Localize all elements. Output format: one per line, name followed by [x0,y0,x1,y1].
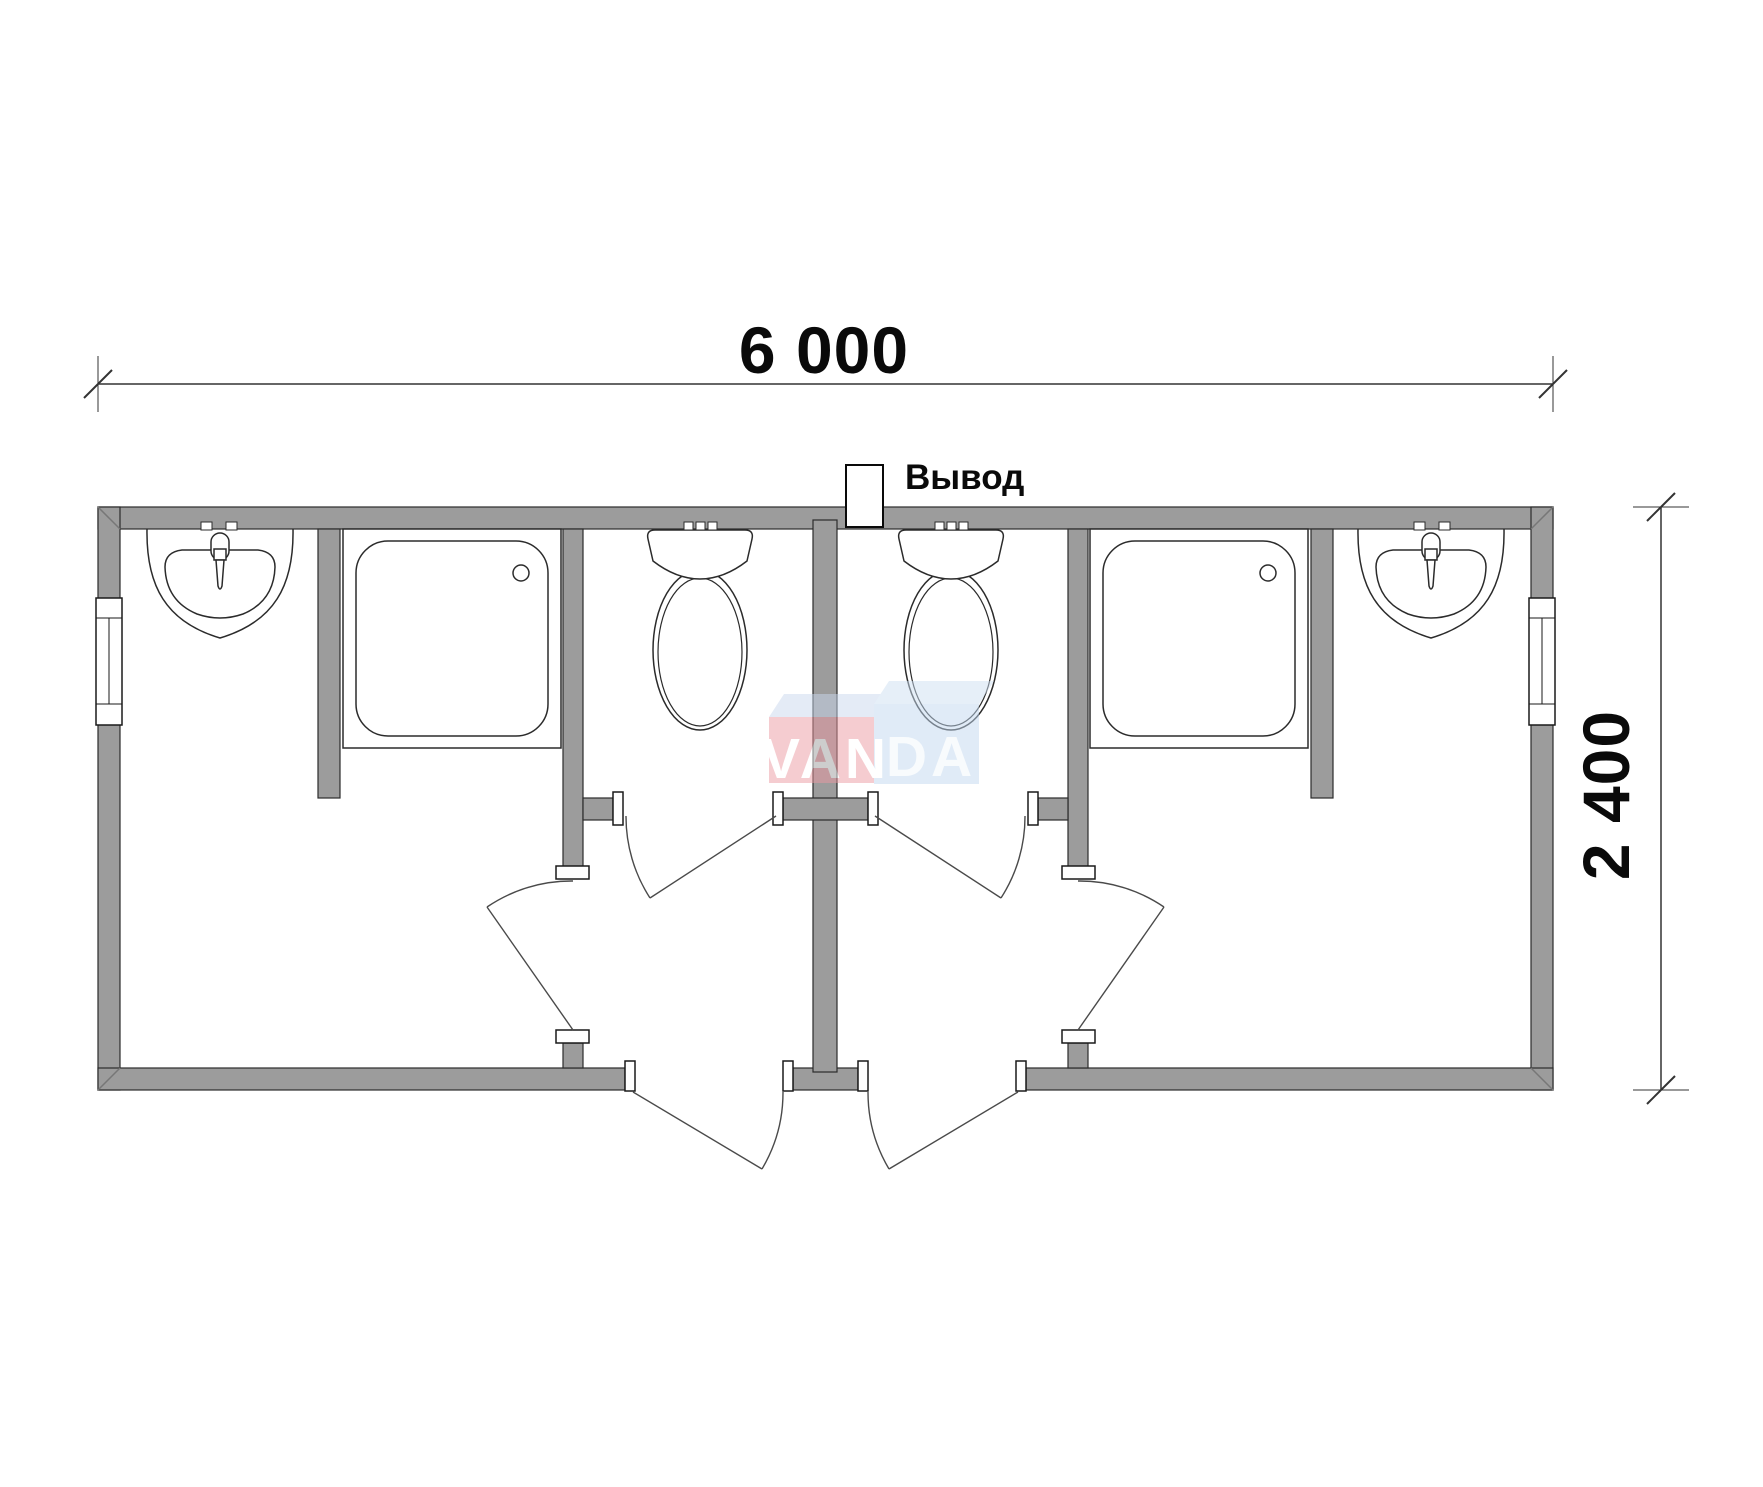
jamb-entrance-left-a [625,1061,635,1091]
toilet-left-icon [648,522,753,730]
door-swing-arc [1078,881,1164,907]
window-left [96,598,122,725]
door-swing-arc [1001,816,1025,898]
watermark-box-top-left [769,694,891,717]
window-right [1529,598,1555,725]
jamb-stall-right-a [868,792,878,825]
door-stub-center [783,798,868,820]
walls [98,507,1553,1090]
door-swing-arc [868,1092,889,1169]
door-room-left [487,881,573,1030]
washbasin-left-icon [147,522,293,638]
partition-left-stall [563,529,583,867]
door-leaf [1078,907,1164,1030]
door-leaf [889,1092,1018,1169]
door-entrance-right [868,1092,1018,1169]
jamb-room-left-bottom [556,1030,589,1043]
dimension-height-label: 2 400 [1569,710,1643,880]
door-leaf [487,907,573,1030]
jamb-stall-left-a [613,792,623,825]
wall-left [98,507,120,1090]
door-room-right [1078,881,1164,1030]
dimension-width-label: 6 000 [739,313,909,387]
door-stub-bottom-right [1068,1043,1088,1068]
jamb-entrance-right-a [858,1061,868,1091]
jamb-entrance-left-b [783,1061,793,1091]
outlet-label: Вывод [905,458,1024,497]
outlet-box-icon [846,465,883,527]
floor-plan-drawing: 6 000 2 400 [0,0,1763,1487]
watermark-text-van: VAN [762,727,890,791]
door-entrance-left [633,1092,783,1169]
door-swing-arc [762,1092,783,1169]
watermark-box-top-right [874,681,994,704]
door-stub-right-stall [1038,798,1068,820]
shower-tray-left-icon [343,529,561,748]
jamb-room-right-top [1062,866,1095,879]
shower-tray-right-icon [1090,529,1308,748]
door-stub-bottom-left [563,1043,583,1068]
wall-right [1531,507,1553,1090]
door-leaf [633,1092,762,1169]
jamb-stall-right-b [1028,792,1038,825]
door-stall-left [626,816,776,898]
floor-plan-canvas: 6 000 2 400 [0,0,1763,1487]
partition-right-stall [1068,529,1088,867]
watermark-logo: VAN DA [762,681,994,791]
partition-left-shower [318,529,340,798]
partition-right-shower [1311,529,1333,798]
door-swing-arc [626,816,650,898]
wall-bottom-right [1026,1068,1553,1090]
door-leaf [650,816,776,898]
door-leaf [875,816,1001,898]
jamb-room-left-top [556,866,589,879]
door-stall-right [875,816,1025,898]
door-swing-arc [487,881,573,907]
jamb-stall-left-b [773,792,783,825]
jamb-entrance-right-b [1016,1061,1026,1091]
door-stub-left-stall [583,798,613,820]
wall-bottom-left [98,1068,625,1090]
wall-center [813,520,837,1072]
jamb-room-right-bottom [1062,1030,1095,1043]
watermark-text-da: DA [886,725,976,789]
washbasin-right-icon [1358,522,1504,638]
